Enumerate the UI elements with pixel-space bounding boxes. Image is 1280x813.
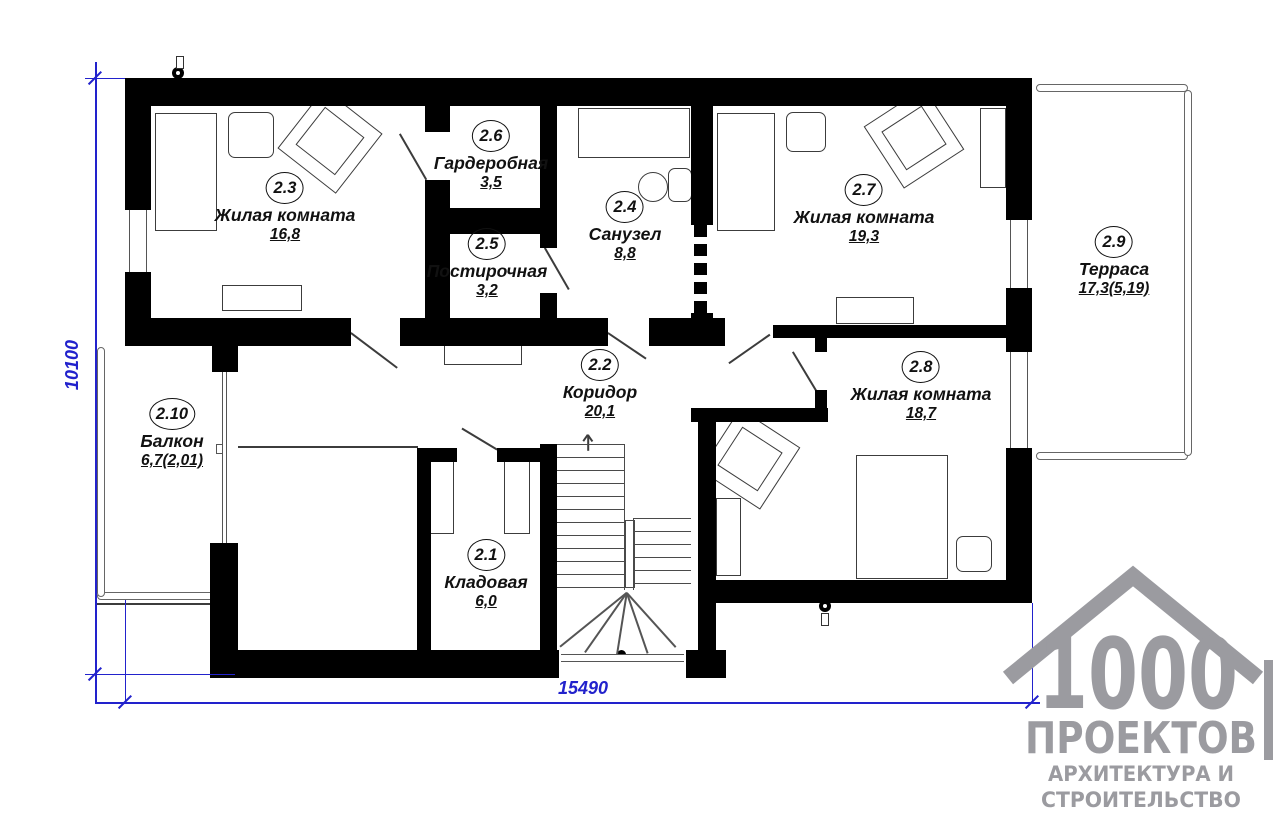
cabinet <box>716 498 741 576</box>
company-logo: 1000 ПРОЕКТОВ АРХИТЕКТУРА И СТРОИТЕЛЬСТВ… <box>1002 556 1280 813</box>
room-number: 2.6 <box>472 120 510 152</box>
terrace-door-opening <box>1010 220 1028 288</box>
room-label-laundry: 2.5 Постирочная 3,2 <box>427 228 548 300</box>
wall <box>125 272 151 346</box>
room-label-wardrobe: 2.6 Гардеробная 3,5 <box>434 120 548 192</box>
room-name: Жилая комната <box>794 207 935 228</box>
room-name: Балкон <box>140 431 203 452</box>
stair-winder-line <box>626 592 676 647</box>
storage-shelf <box>504 458 530 534</box>
room-area: 6,7(2,01) <box>140 452 203 470</box>
balcony-rail-left <box>97 347 105 597</box>
extension-line <box>85 674 235 675</box>
wall <box>125 78 1032 106</box>
bed <box>155 113 217 231</box>
room-number: 2.3 <box>266 172 304 204</box>
room-number: 2.2 <box>581 349 619 381</box>
room-name: Жилая комната <box>215 205 356 226</box>
wall <box>400 318 608 346</box>
room-area: 16,8 <box>215 226 356 244</box>
door-leaf <box>461 428 497 450</box>
room-number: 2.8 <box>902 351 940 383</box>
stair-flight-left <box>557 444 625 590</box>
dimension-line-left <box>95 62 97 704</box>
storage-shelf <box>428 458 454 534</box>
door-leaf <box>351 332 398 368</box>
wall <box>417 448 431 656</box>
balcony-rail-bottom <box>97 592 223 600</box>
vent-shaft <box>694 263 707 275</box>
wall <box>691 106 713 225</box>
logo-title: ПРОЕКТОВ <box>1025 713 1257 764</box>
room-number: 2.9 <box>1095 226 1133 258</box>
door-leaf <box>544 247 569 289</box>
room-area: 17,3(5,19) <box>1079 280 1150 298</box>
wall <box>715 580 1032 603</box>
room-area: 8,8 <box>589 245 662 263</box>
room-label-living-2: 2.7 Жилая комната 19,3 <box>794 174 935 246</box>
nightstand <box>956 536 992 572</box>
window <box>129 210 147 272</box>
wall <box>773 325 1006 338</box>
floor-plan: 2.3 Жилая комната 16,8 2.6 Гардеробная 3… <box>0 0 1280 813</box>
room-number: 2.7 <box>845 174 883 206</box>
toilet-tank <box>668 168 692 202</box>
vent-shaft <box>694 282 707 294</box>
wall <box>214 650 559 678</box>
room-number: 2.1 <box>467 539 505 571</box>
extension-line <box>125 600 126 702</box>
room-area: 18,7 <box>851 405 992 423</box>
wall <box>698 420 716 678</box>
wall <box>1006 288 1032 352</box>
wardrobe <box>980 108 1006 188</box>
room-area: 3,2 <box>427 282 548 300</box>
room-name: Постирочная <box>427 261 548 282</box>
balcony-door <box>222 372 227 543</box>
logo-subtitle-2: СТРОИТЕЛЬСТВО <box>1041 788 1241 812</box>
dimension-height-label: 10100 <box>62 340 83 390</box>
terrace-rail-right <box>1184 90 1192 456</box>
window <box>561 654 684 662</box>
door-leaf <box>729 334 771 364</box>
wall <box>125 318 351 346</box>
room-name: Коридор <box>563 382 637 403</box>
stair-flight-right <box>633 518 691 590</box>
vent-shaft <box>694 244 707 256</box>
room-label-storage: 2.1 Кладовая 6,0 <box>444 539 527 611</box>
room-area: 6,0 <box>444 593 527 611</box>
dimension-width-label: 15490 <box>558 678 608 699</box>
room-number: 2.10 <box>149 398 195 430</box>
nightstand <box>786 112 826 152</box>
room-label-balcony: 2.10 Балкон 6,7(2,01) <box>140 398 203 470</box>
wall <box>691 408 828 422</box>
room-label-living-3: 2.8 Жилая комната 18,7 <box>851 351 992 423</box>
room-name: Кладовая <box>444 572 527 593</box>
room-number: 2.4 <box>606 191 644 223</box>
dimension-line-bottom <box>95 702 1040 704</box>
room-area: 20,1 <box>563 403 637 421</box>
door-leaf <box>792 351 818 393</box>
room-label-living-1: 2.3 Жилая комната 16,8 <box>215 172 356 244</box>
room-number: 2.5 <box>468 228 506 260</box>
wall <box>497 448 557 462</box>
room-area: 19,3 <box>794 228 935 246</box>
vent-stem <box>176 56 184 69</box>
room-area: 3,5 <box>434 174 548 192</box>
vent-shaft <box>694 301 707 313</box>
dresser <box>222 285 302 311</box>
vent-stem <box>821 613 829 626</box>
room-name: Санузел <box>589 224 662 245</box>
terrace-rail-top <box>1036 84 1188 92</box>
terrace-rail-bottom <box>1036 452 1188 460</box>
wall <box>540 444 557 678</box>
knee-wall-line <box>238 446 418 448</box>
bed <box>717 113 775 231</box>
nightstand <box>228 112 274 158</box>
bathtub <box>578 108 690 158</box>
room-label-terrace: 2.9 Терраса 17,3(5,19) <box>1079 226 1150 298</box>
room-name: Гардеробная <box>434 153 548 174</box>
dresser <box>836 297 914 324</box>
double-bed <box>856 455 948 579</box>
logo-bar <box>1264 660 1273 760</box>
room-label-corridor: 2.2 Коридор 20,1 <box>563 349 637 421</box>
stair-winder-line <box>626 593 648 654</box>
room-name: Терраса <box>1079 259 1150 280</box>
door-leaf <box>399 133 427 180</box>
room-name: Жилая комната <box>851 384 992 405</box>
wall <box>815 390 827 420</box>
wall <box>649 318 725 346</box>
logo-subtitle-1: АРХИТЕКТУРА И <box>1048 762 1234 786</box>
terrace-door-opening <box>1010 352 1028 448</box>
vent-shaft <box>694 225 707 237</box>
room-label-bathroom: 2.4 Санузел 8,8 <box>589 191 662 263</box>
